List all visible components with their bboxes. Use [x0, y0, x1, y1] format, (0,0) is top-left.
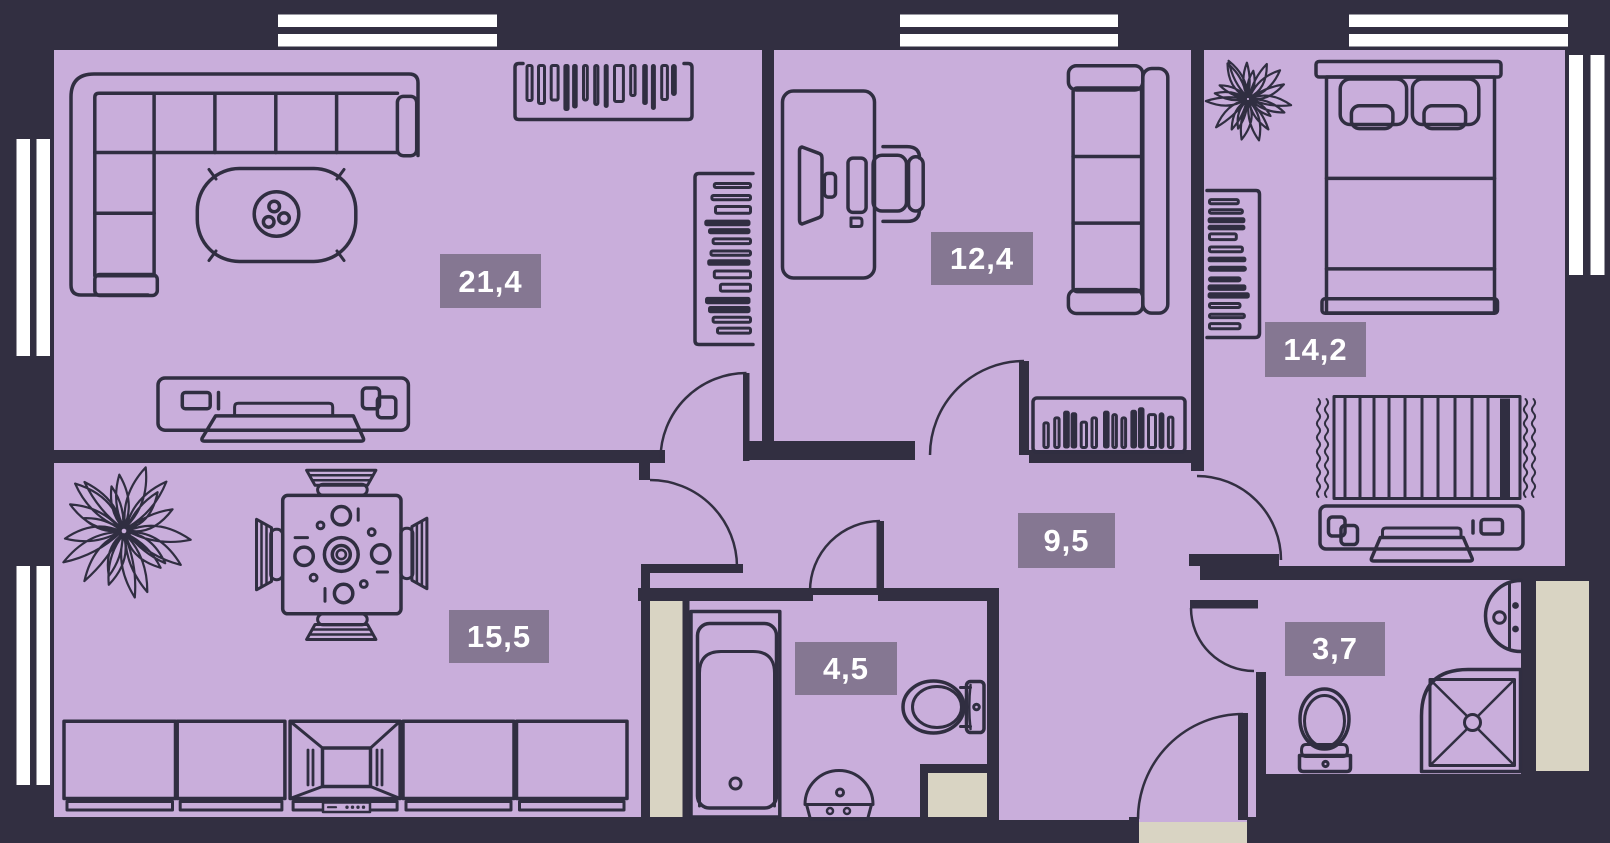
svg-text:12,4: 12,4: [950, 241, 1014, 276]
svg-text:21,4: 21,4: [458, 264, 522, 299]
svg-text:15,5: 15,5: [467, 619, 531, 654]
svg-text:9,5: 9,5: [1043, 523, 1089, 558]
svg-text:14,2: 14,2: [1283, 332, 1347, 367]
svg-text:4,5: 4,5: [823, 651, 869, 686]
svg-text:3,7: 3,7: [1312, 631, 1358, 666]
